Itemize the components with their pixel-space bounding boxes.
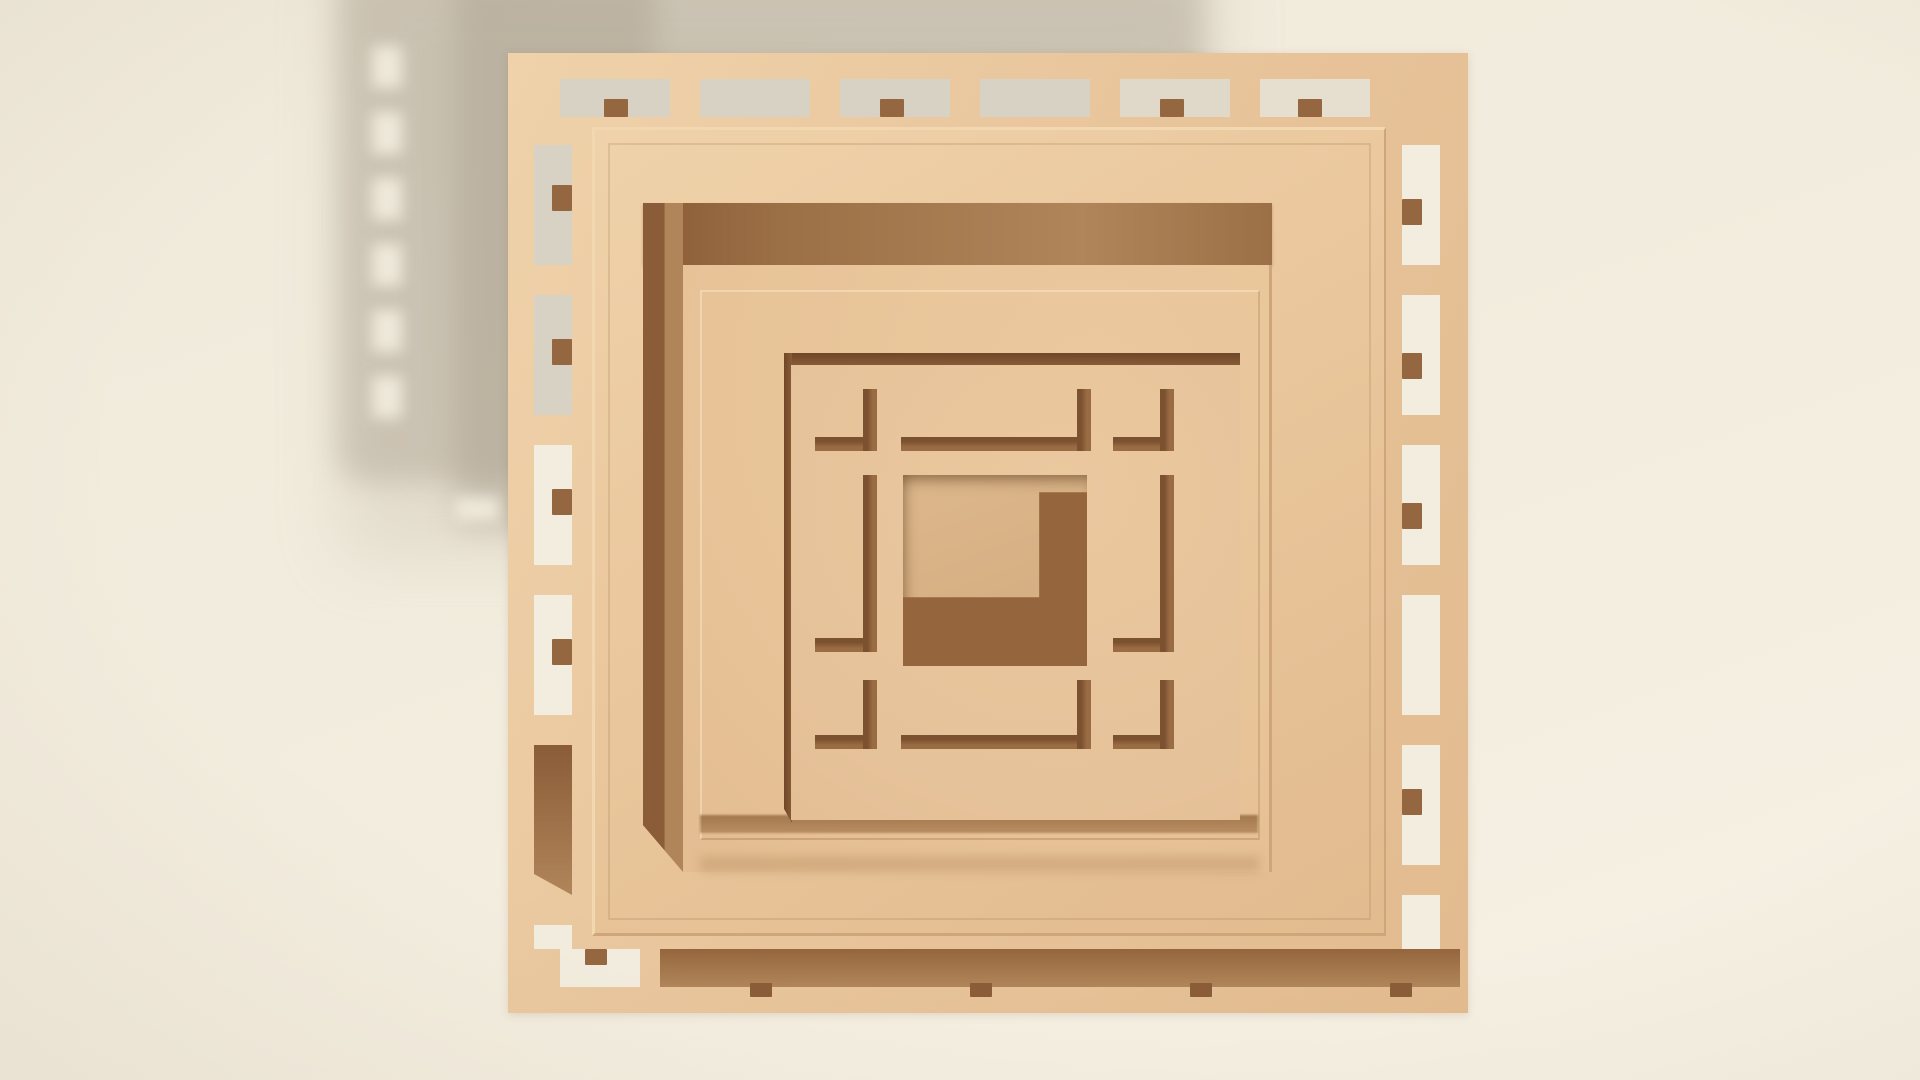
window-slot xyxy=(1077,389,1091,451)
window-slot xyxy=(815,735,863,749)
frame-peg xyxy=(552,639,572,665)
shadow-light-gap xyxy=(372,46,402,88)
frame-slot-top xyxy=(700,79,810,117)
frame-peg xyxy=(585,949,607,965)
frame-slot-top xyxy=(980,79,1090,117)
frame-peg xyxy=(1402,503,1422,529)
window-center-hole xyxy=(903,475,1087,666)
frame-bottom-shadow-band xyxy=(660,949,1460,987)
window-slot xyxy=(863,389,877,451)
frame-peg xyxy=(1402,353,1422,379)
plate-middle-top-side-shadow xyxy=(643,203,1272,265)
window-slot xyxy=(1113,437,1160,451)
window-slot xyxy=(901,735,1077,749)
window-slot xyxy=(1077,680,1091,749)
shadow-light-gap xyxy=(372,310,402,352)
frame-peg xyxy=(1160,99,1184,117)
frame-peg xyxy=(552,489,572,515)
window-slot xyxy=(815,437,863,451)
window-slot xyxy=(1113,735,1160,749)
window-slot xyxy=(1113,638,1160,652)
shadow-light-gap xyxy=(372,244,402,286)
frame-slot-left xyxy=(534,925,572,949)
frame-peg xyxy=(552,339,572,365)
frame-peg xyxy=(1402,199,1422,225)
frame-peg xyxy=(1298,99,1322,117)
window-slot xyxy=(1160,680,1174,749)
render-canvas xyxy=(0,0,1920,1080)
shadow-light-gap xyxy=(455,497,499,521)
window-slot xyxy=(1160,475,1174,652)
frame-peg xyxy=(1402,789,1422,815)
frame-peg xyxy=(750,983,772,997)
window-slot xyxy=(863,475,877,652)
frame-peg xyxy=(1390,983,1412,997)
frame-peg xyxy=(604,99,628,117)
window-panel xyxy=(791,365,1240,820)
frame-slot-left-shadowed xyxy=(534,745,572,895)
window-slot xyxy=(901,437,1077,451)
frame-peg xyxy=(552,185,572,211)
frame-peg xyxy=(970,983,992,997)
plate-middle-bottom-edge xyxy=(700,856,1260,872)
window-slot xyxy=(815,638,863,652)
hole-interior-shadow xyxy=(903,475,1087,666)
window-slot xyxy=(1160,389,1174,451)
frame-peg xyxy=(1190,983,1212,997)
plate-middle-left-side-shadow xyxy=(643,203,683,872)
shadow-light-gap xyxy=(372,376,402,418)
frame-slot-right xyxy=(1402,895,1440,955)
shadow-light-gap xyxy=(372,178,402,220)
frame-slot-right xyxy=(1402,595,1440,715)
frame-peg xyxy=(880,99,904,117)
window-slot xyxy=(863,680,877,749)
shadow-light-gap xyxy=(372,112,402,154)
